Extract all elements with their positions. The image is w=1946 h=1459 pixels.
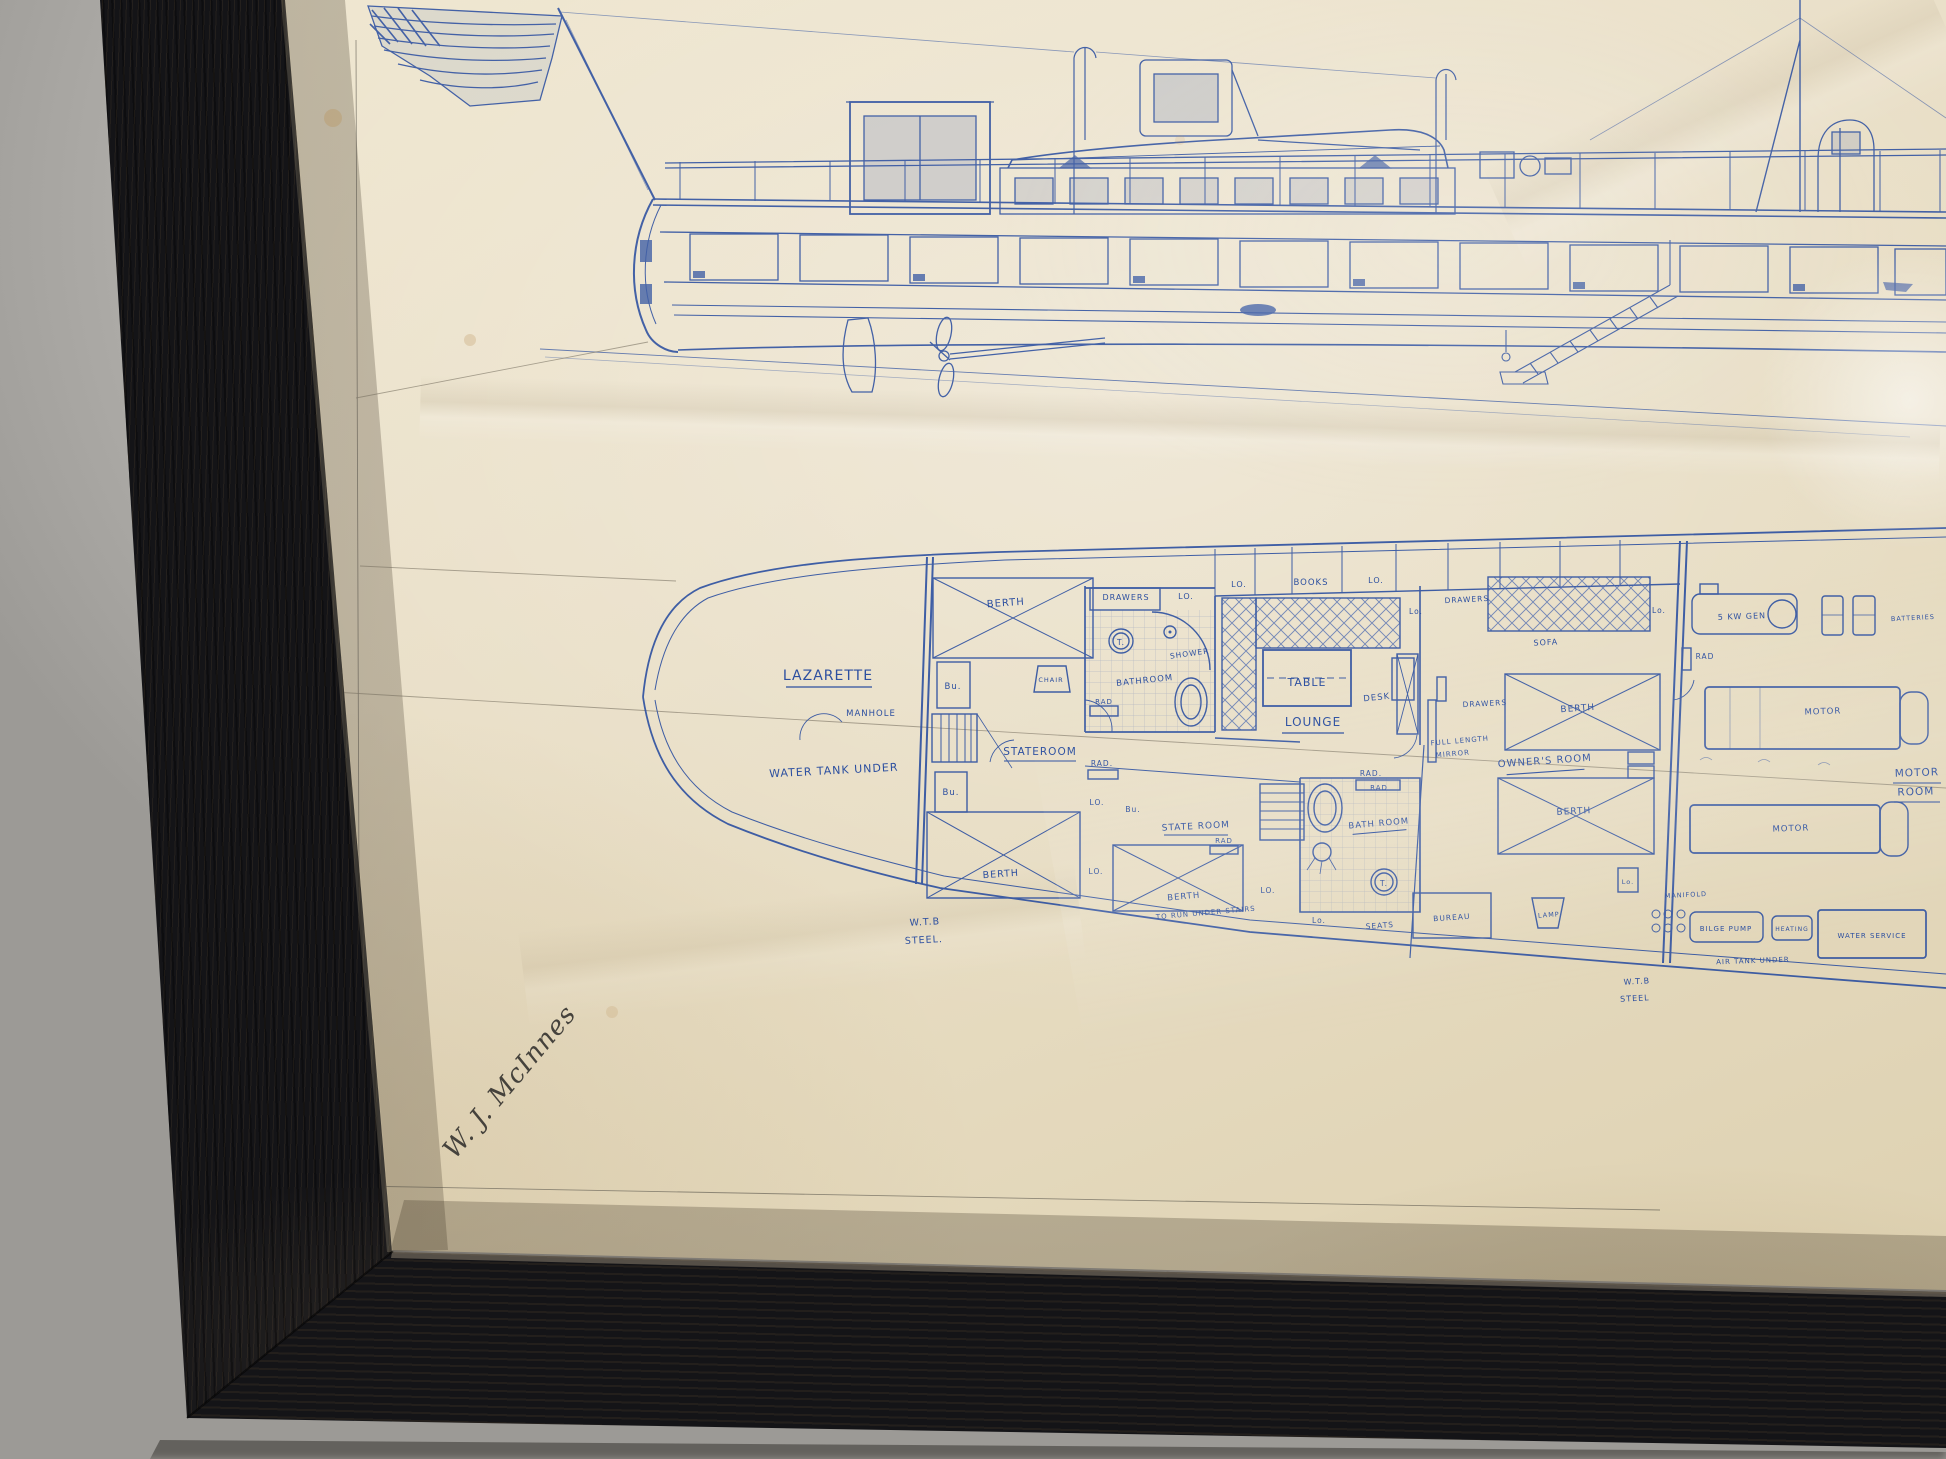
label-gen: 5 KW GEN [1718,611,1767,622]
label-state-room: STATE ROOM [1162,820,1231,834]
label-toilet: T. [1116,638,1125,647]
label-lo2: Lo. [1622,878,1634,886]
label-chair: CHAIR [1038,676,1063,684]
elevation-view [368,0,1946,437]
label-drawers: DRAWERS [1444,594,1489,605]
label-books: BOOKS [1293,578,1328,588]
aft-deckhouse [846,102,994,214]
label-owners-room: OWNER'S ROOM [1498,753,1593,771]
mast [1756,0,1800,212]
label-lazarette: LAZARETTE [783,668,873,684]
label-lo: LO. [1178,592,1194,601]
label-motor-room-1: MOTOR [1895,766,1940,780]
label-lo2: Lo. [1409,607,1423,616]
label-berth: BERTH [1556,806,1591,818]
rudder-and-propeller [843,316,1105,398]
label-water-tank-under: WATER TANK UNDER [769,761,899,781]
label-full-length: FULL LENGTH [1430,734,1489,747]
label-manhole: MANHOLE [846,709,896,719]
label-lo: LO. [1261,886,1276,895]
boarding-ladder [1500,240,1678,384]
label-bu: Bu. [1125,805,1140,814]
label-steel: STEEL. [905,934,944,947]
label-bu: Bu. [945,682,962,692]
label-lo: LO. [1090,798,1105,807]
rail [665,149,1946,168]
flag-icon [368,6,562,106]
label-table: TABLE [1286,676,1326,689]
label-berth: BERTH [1167,891,1201,904]
plan-view [643,528,1946,988]
upper-bathroom [1085,586,1215,732]
label-desk: DESK [1363,692,1391,705]
bulwark-panels [690,234,1946,295]
label-air-tank-under: AIR TANK UNDER [1716,956,1790,967]
label-motor: MOTOR [1804,706,1841,717]
bow-structure [1818,120,1874,212]
label-rad-dot: RAD. [1091,759,1113,768]
label-heating: HEATING [1775,926,1809,933]
label-stateroom: STATEROOM [1003,746,1077,758]
label-rad-dot: RAD. [1360,769,1382,778]
label-lounge: LOUNGE [1285,715,1341,729]
label-lo2: Lo. [1312,916,1326,925]
label-drawers: DRAWERS [1462,698,1507,709]
label-drawers: DRAWERS [1102,593,1149,602]
label-steel-2: STEEL [1620,993,1650,1004]
label-rad: RAD [1215,837,1233,845]
label-bu: Bu. [943,788,960,798]
label-lo: LO. [1231,580,1247,589]
label-lamp: LAMP [1538,910,1560,919]
label-mirror: MIRROR [1435,749,1470,760]
label-berth: BERTH [982,868,1019,882]
label-manifold: MANIFOLD [1665,890,1708,900]
photo-of-framed-blueprint: LAZARETTE MANHOLE WATER TANK UNDER BERTH… [0,0,1946,1459]
engine-room [1652,584,1928,958]
label-batteries: BATTERIES [1891,613,1935,623]
label-rad: RAD [1370,784,1388,792]
label-seats: SEATS [1365,920,1394,931]
label-rad: RAD [1696,652,1715,661]
label-lo: LO. [1089,867,1104,876]
label-wtb: W.T.B [909,916,940,929]
label-berth: BERTH [986,597,1025,611]
label-sofa: SOFA [1533,637,1558,647]
owners-room [1410,577,1691,958]
label-motor-room-2: ROOM [1897,785,1934,798]
label-motor: MOTOR [1772,823,1809,834]
label-berth: BERTH [1560,703,1595,715]
winch [1480,152,1571,178]
signature: W. J. McInnes [437,999,582,1164]
label-bureau: BUREAU [1433,912,1471,924]
label-lo: LO. [1368,576,1384,585]
lounge-room [1215,586,1420,758]
label-water-service: WATER SERVICE [1837,932,1906,940]
label-lo2: Lo. [1652,606,1666,615]
label-bilge-pump: BILGE PUMP [1700,925,1752,933]
label-wtb-2: W.T.B [1623,976,1650,986]
label-toilet: T. [1379,879,1388,888]
bulkhead-aft [916,557,933,884]
hull-transom [634,199,678,352]
label-rad: RAD [1095,698,1113,706]
